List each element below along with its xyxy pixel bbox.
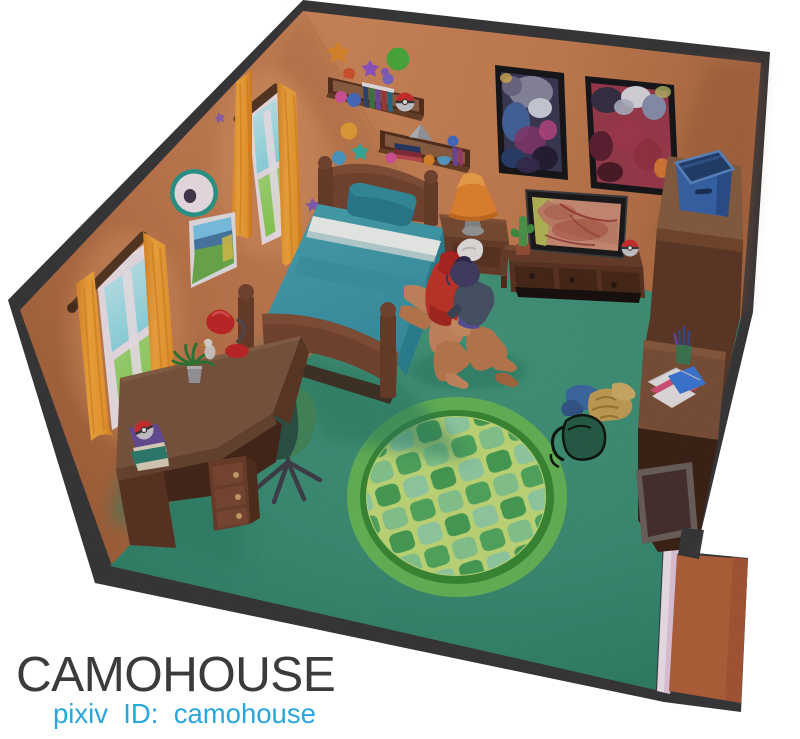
svg-text:CAMOHOUSE: CAMOHOUSE — [16, 647, 335, 702]
svg-text:pixiv ID: camohouse: pixiv ID: camohouse — [53, 698, 316, 729]
